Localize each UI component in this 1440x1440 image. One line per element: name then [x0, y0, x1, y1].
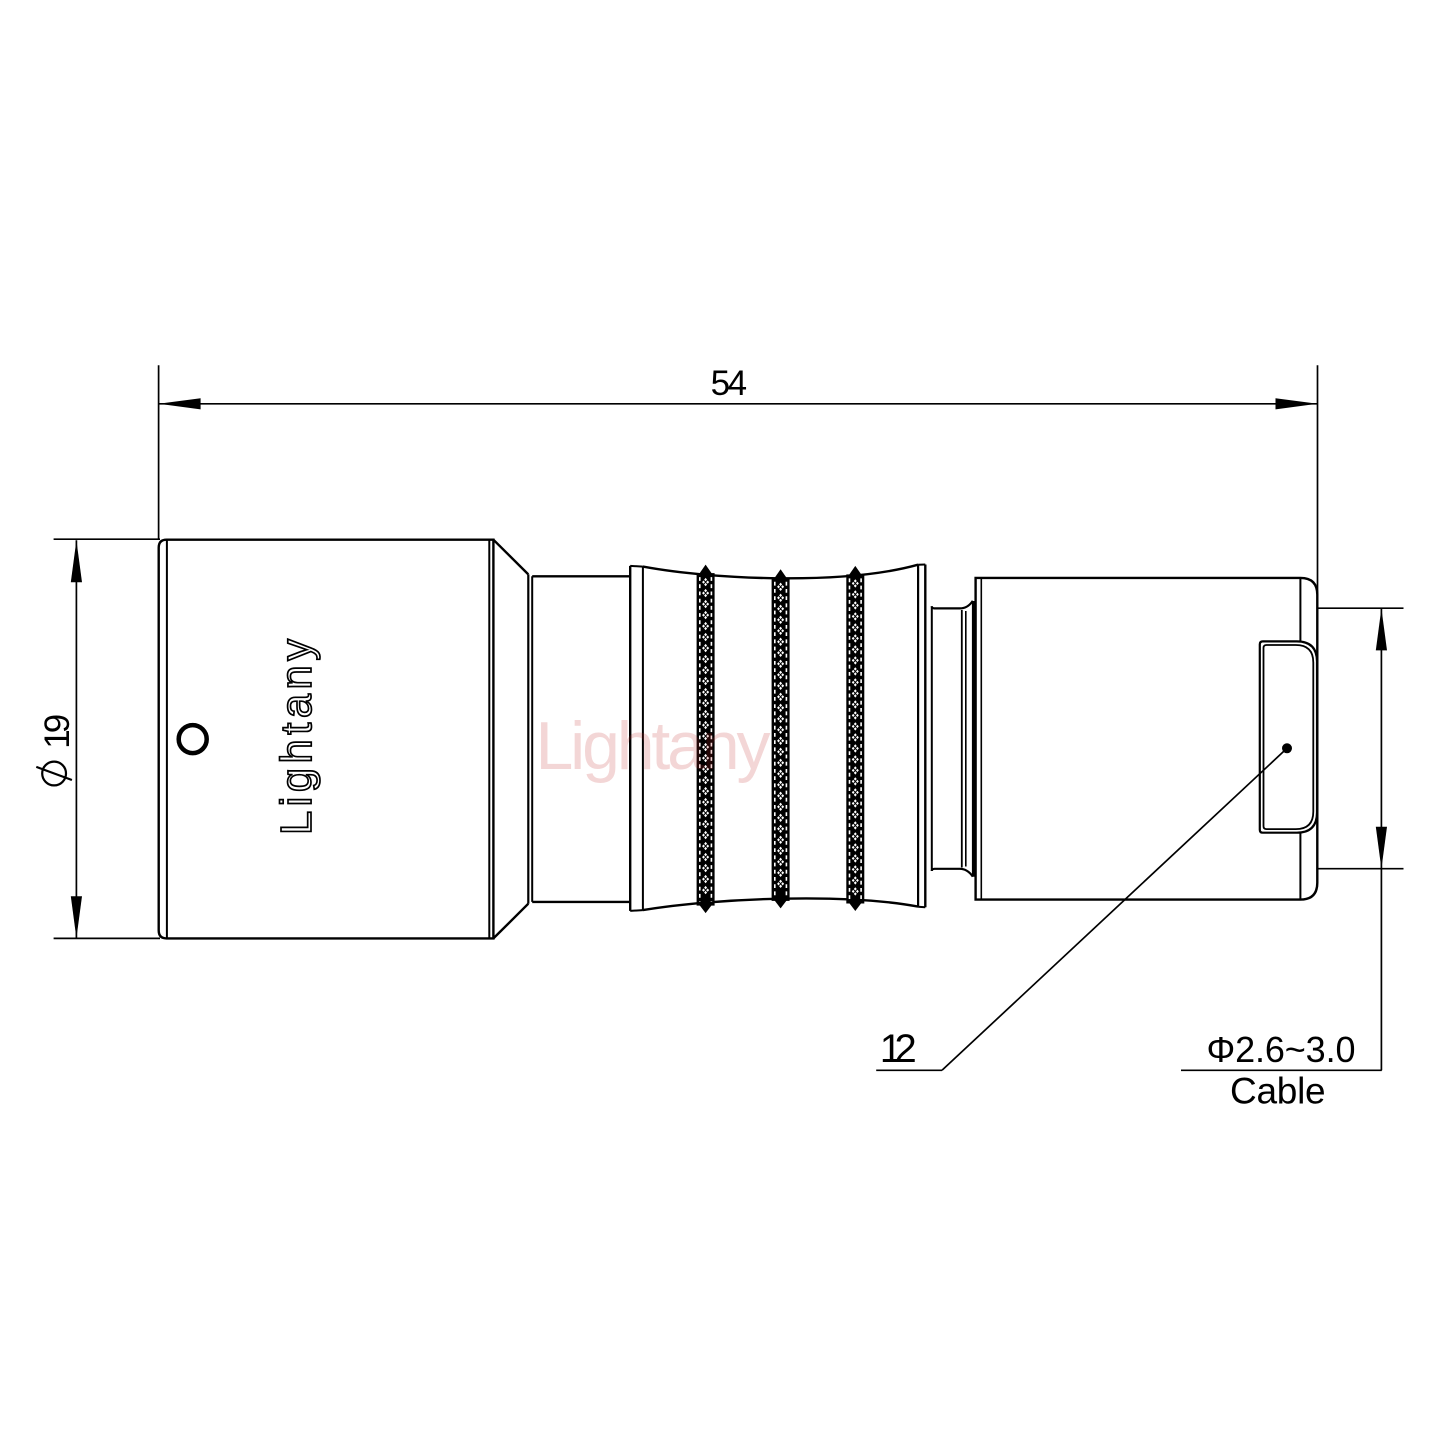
svg-text:Lightany: Lightany — [536, 708, 771, 784]
svg-text:Φ2.6~3.0: Φ2.6~3.0 — [1207, 1029, 1356, 1070]
svg-text:54: 54 — [711, 364, 748, 403]
svg-text:Cable: Cable — [1230, 1070, 1326, 1111]
svg-text:19: 19 — [38, 714, 77, 749]
svg-text:12: 12 — [880, 1027, 917, 1071]
svg-text:Lightany: Lightany — [273, 639, 321, 835]
